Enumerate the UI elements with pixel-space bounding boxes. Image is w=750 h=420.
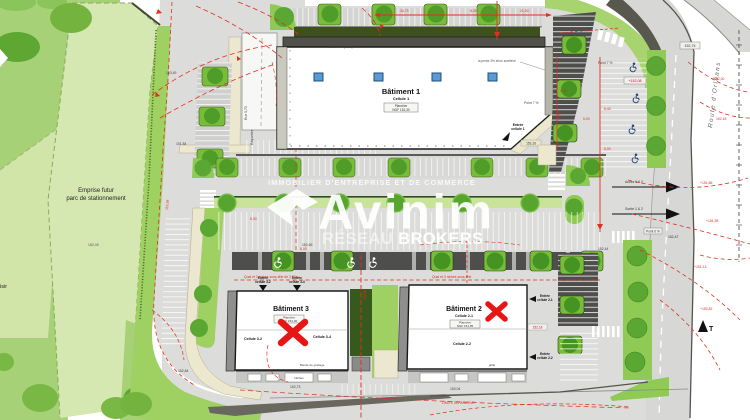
- svg-text:Niches: Niches: [294, 376, 304, 380]
- svg-text:isir: isir: [0, 284, 7, 290]
- svg-text:153,04: 153,04: [450, 387, 460, 391]
- svg-text:152,69: 152,69: [302, 243, 312, 247]
- svg-text:grille: grille: [489, 363, 496, 367]
- svg-text:Cellule 2-1: Cellule 2-1: [455, 314, 473, 318]
- svg-text:152,49: 152,49: [88, 243, 99, 247]
- svg-text:cellule 2-2: cellule 2-2: [537, 356, 553, 360]
- svg-text:6,00: 6,00: [300, 247, 307, 251]
- svg-text:152,84: 152,84: [178, 369, 188, 373]
- svg-text:34,73: 34,73: [400, 9, 409, 13]
- svg-text:cellule 1: cellule 1: [511, 127, 524, 131]
- svg-text:cellule 3-2: cellule 3-2: [255, 280, 271, 284]
- svg-text:151,84: 151,84: [176, 142, 186, 146]
- svg-text:5,00: 5,00: [604, 147, 611, 151]
- svg-text:parc de stationnement: parc de stationnement: [66, 196, 126, 202]
- svg-text:Sortie 1 & 2: Sortie 1 & 2: [625, 207, 643, 211]
- svg-text:Bâtiment 1: Bâtiment 1: [382, 87, 420, 96]
- svg-text:Cellule 3-4: Cellule 3-4: [313, 335, 331, 339]
- svg-text:31,50: 31,50: [557, 111, 561, 120]
- svg-text:NGF 151,30: NGF 151,30: [392, 108, 410, 112]
- svg-text:21,00: 21,00: [520, 9, 529, 13]
- svg-text:Bâtiment 2: Bâtiment 2: [446, 306, 482, 313]
- svg-text:153,49: 153,49: [166, 71, 176, 75]
- svg-text:Point 7 %: Point 7 %: [524, 101, 539, 105]
- svg-text:Quai et 3 niches sous-tête de: Quai et 3 niches sous-tête de 3,50m: [244, 275, 299, 279]
- svg-text:Quai et 3 niches sous-tête: Quai et 3 niches sous-tête: [432, 275, 472, 279]
- svg-text:+152,08: +152,08: [628, 79, 641, 83]
- svg-text:cellule 3-4: cellule 3-4: [289, 280, 305, 284]
- svg-text:152,47: 152,47: [668, 235, 678, 239]
- svg-text:152,18: 152,18: [716, 117, 726, 121]
- svg-text:Cellule 1: Cellule 1: [393, 96, 410, 101]
- svg-text:5,00: 5,00: [250, 217, 257, 221]
- svg-text:+151,55: +151,55: [706, 219, 718, 223]
- svg-text:8,00: 8,00: [470, 9, 477, 13]
- svg-text:T: T: [709, 326, 714, 333]
- svg-text:6,43: 6,43: [604, 107, 611, 111]
- svg-text:Cellule 2-2: Cellule 2-2: [453, 342, 471, 346]
- svg-text:Point 0 %: Point 0 %: [646, 230, 660, 234]
- svg-text:RÉSEAU BROKERS: RÉSEAU BROKERS: [322, 229, 483, 248]
- svg-text:153,84: 153,84: [165, 199, 170, 210]
- svg-text:152,44: 152,44: [598, 247, 608, 251]
- svg-text:+151,13: +151,13: [694, 265, 706, 269]
- svg-text:LIMITE SÉPARATIVE: LIMITE SÉPARATIVE: [442, 400, 475, 405]
- svg-text:Cellule 3-2: Cellule 3-2: [244, 337, 262, 341]
- svg-text:152,18: 152,18: [533, 326, 543, 330]
- svg-text:Point 7 %: Point 7 %: [598, 61, 613, 65]
- svg-text:Bande de guidage: Bande de guidage: [330, 45, 355, 49]
- svg-text:NGF 151,55: NGF 151,55: [457, 324, 474, 328]
- svg-text:153,16: 153,16: [526, 142, 536, 146]
- svg-text:+150,82: +150,82: [700, 307, 712, 311]
- svg-text:Bâtiment 3: Bâtiment 3: [273, 306, 309, 313]
- svg-text:cellule 2-1: cellule 2-1: [537, 298, 553, 302]
- svg-text:+152,30: +152,30: [712, 77, 724, 81]
- svg-text:Rue 5,73: Rue 5,73: [244, 106, 248, 120]
- svg-text:la pente 3% et/ou surélevé: la pente 3% et/ou surélevé: [478, 59, 516, 63]
- svg-text:Bande de guidage: Bande de guidage: [300, 363, 325, 367]
- svg-text:152,74: 152,74: [685, 44, 696, 48]
- svg-text:+151,86: +151,86: [700, 181, 712, 185]
- svg-text:Emprise futur: Emprise futur: [78, 188, 114, 194]
- svg-text:152,88: 152,88: [363, 290, 367, 300]
- svg-text:Accès 1 & 2: Accès 1 & 2: [625, 180, 643, 184]
- svg-text:4,00: 4,00: [560, 89, 567, 93]
- svg-text:152,73: 152,73: [290, 385, 300, 389]
- svg-text:Raquettes: Raquettes: [250, 129, 254, 145]
- svg-text:5,00: 5,00: [583, 117, 590, 121]
